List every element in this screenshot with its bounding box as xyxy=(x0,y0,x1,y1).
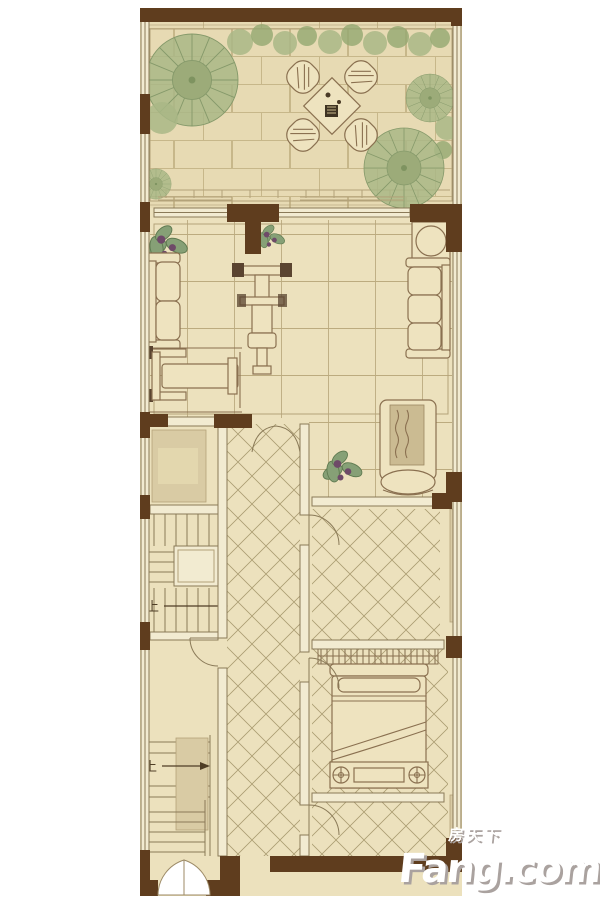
palm-tree-icon xyxy=(406,74,454,122)
terrace xyxy=(141,20,461,208)
closet-room xyxy=(152,430,206,502)
corner-round-table-icon xyxy=(412,222,450,260)
watermark-brand: Fang.com xyxy=(396,846,600,892)
screenshot: 上 上 xyxy=(0,0,600,900)
diamond-tile-floor xyxy=(227,424,300,856)
diamond-tile-floor xyxy=(312,509,440,640)
hallway xyxy=(227,424,300,856)
stair-column xyxy=(176,738,208,830)
stair-landing xyxy=(174,546,218,586)
bed-bench-icon xyxy=(330,762,428,788)
watermark-cjk: 房天下 xyxy=(448,826,504,844)
chaise-lounge-icon xyxy=(380,400,436,495)
floor-plan-image: 上 上 xyxy=(0,0,600,900)
top-wall xyxy=(140,8,462,22)
sofa-right-icon xyxy=(406,258,450,358)
sofa-left-icon xyxy=(146,253,180,350)
